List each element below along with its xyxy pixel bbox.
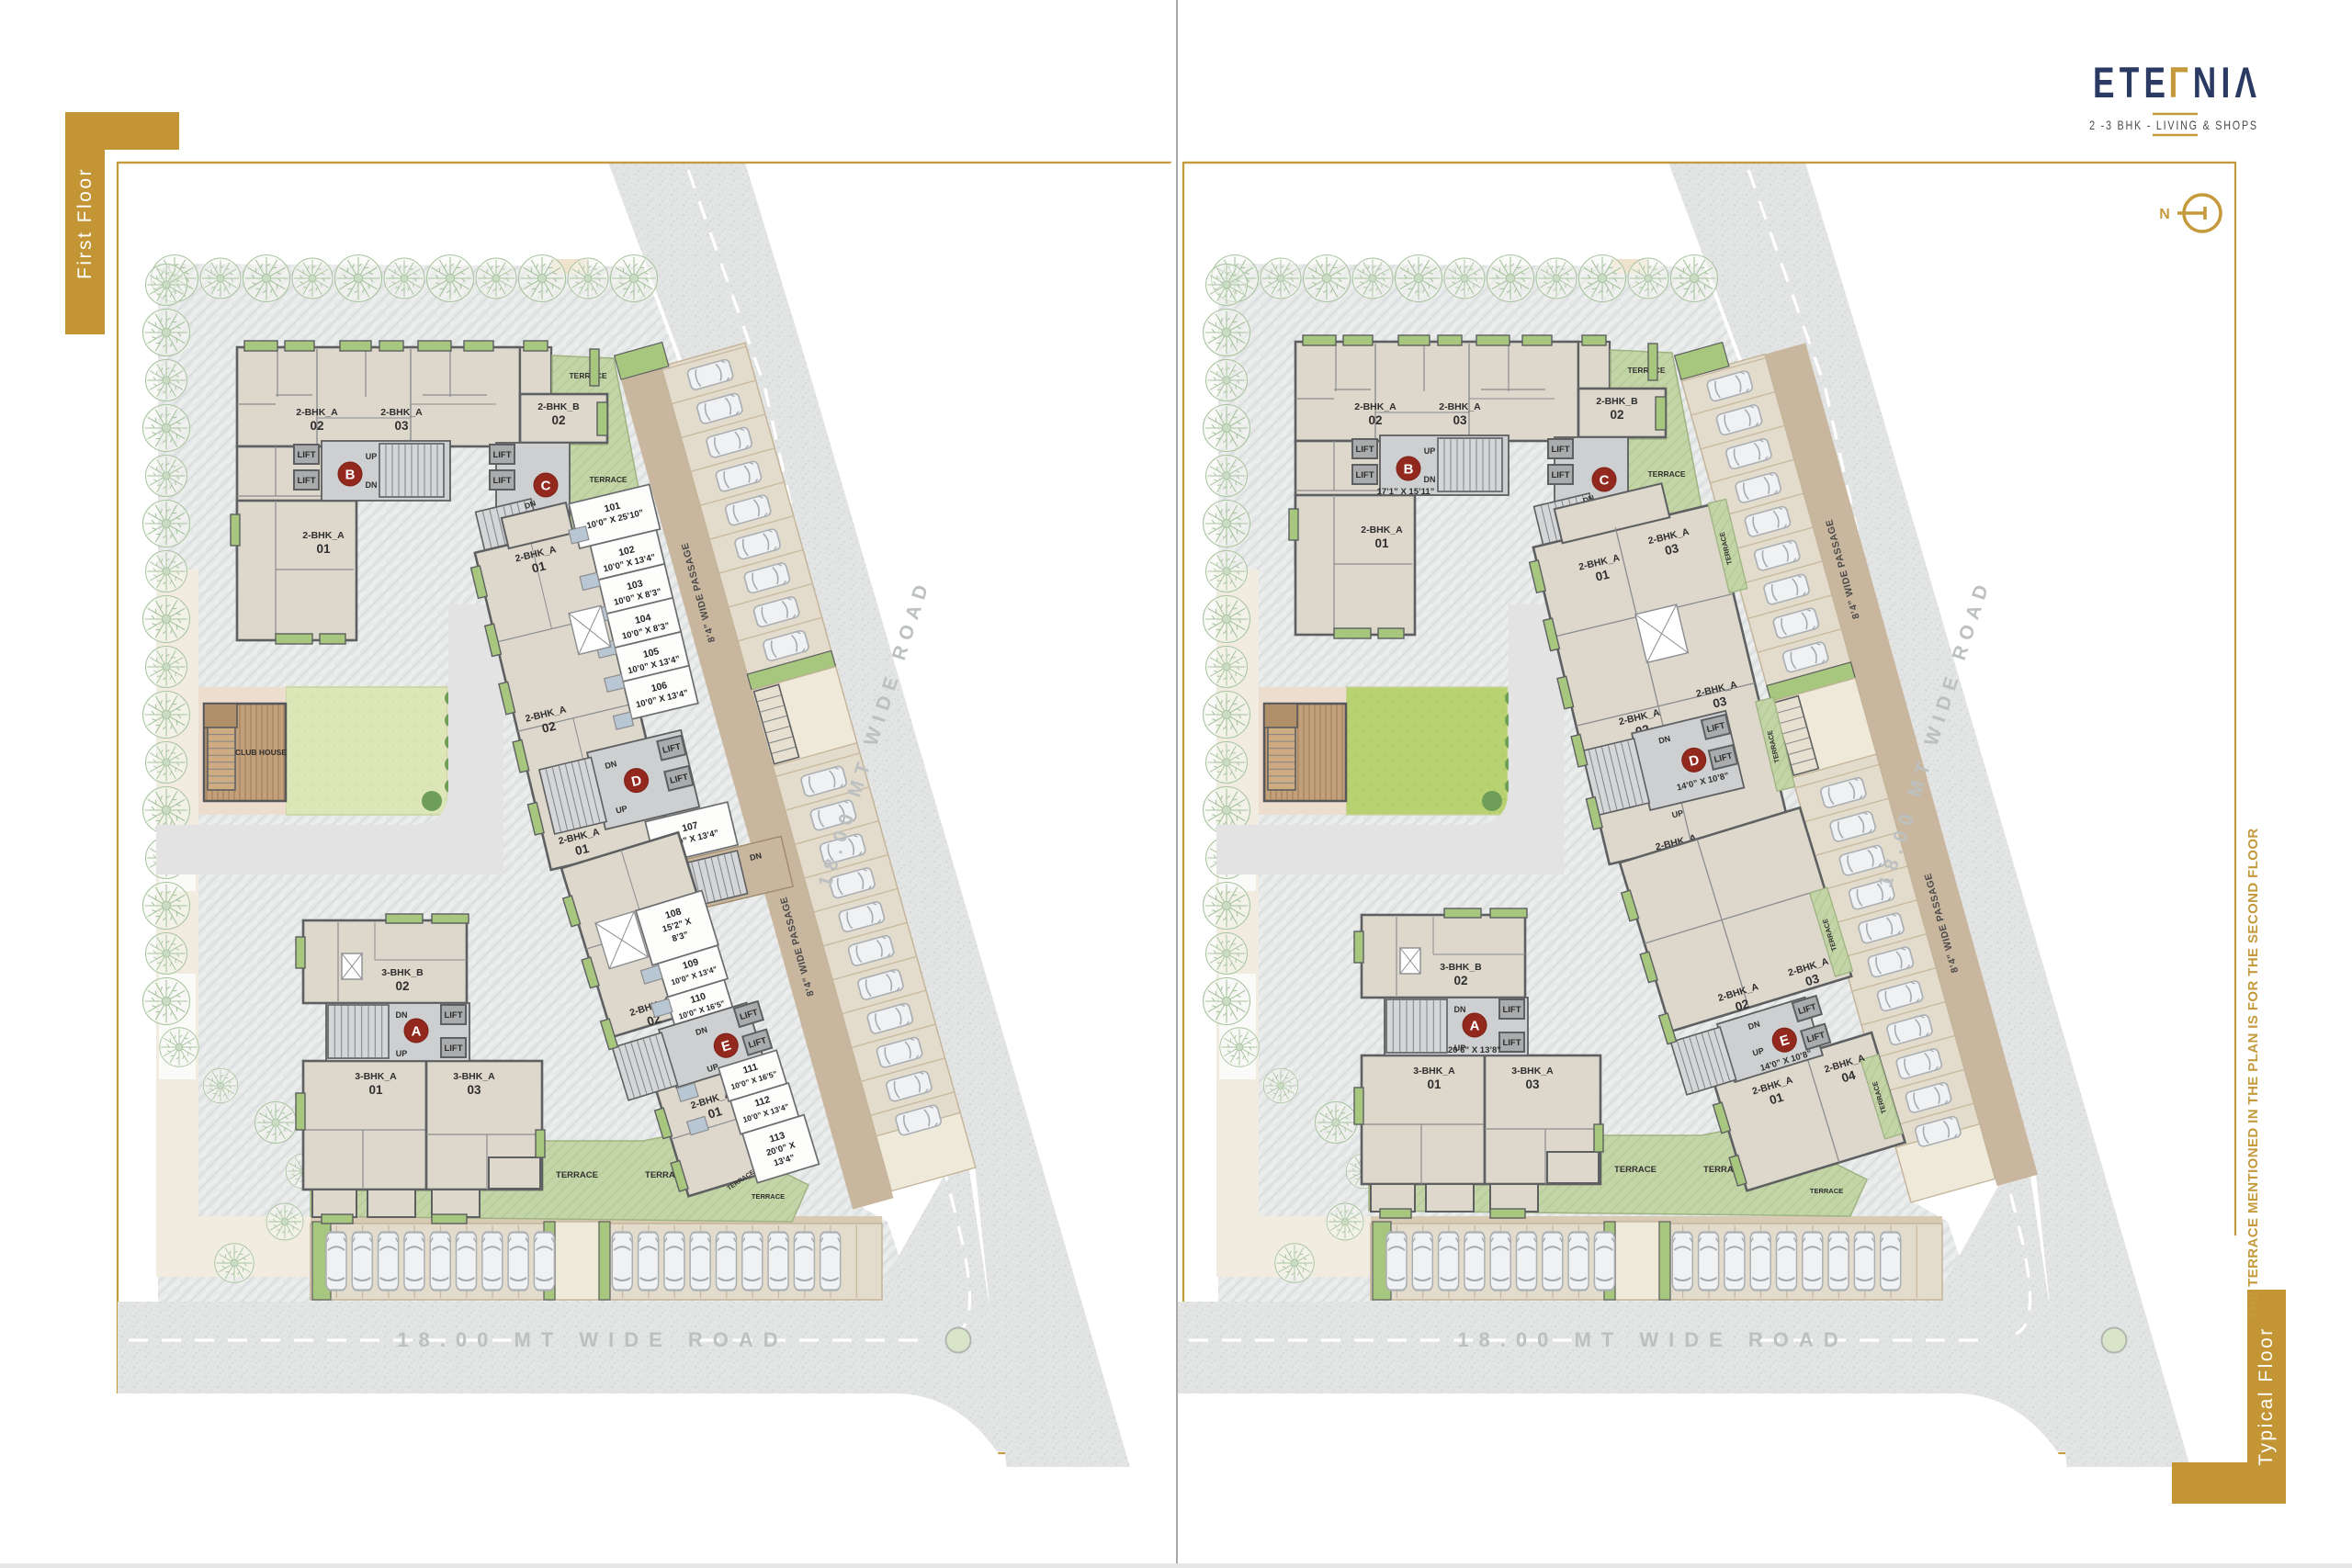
svg-text:3-BHK_A: 3-BHK_A (453, 1071, 495, 1082)
svg-text:2-BHK_A: 2-BHK_A (302, 530, 345, 541)
svg-text:02: 02 (395, 979, 409, 993)
svg-text:LIFT: LIFT (444, 1043, 462, 1054)
svg-text:LIFT: LIFT (297, 476, 315, 486)
svg-text:THE TERRACE MENTIONED IN THE P: THE TERRACE MENTIONED IN THE PLAN IS FOR… (2245, 828, 2261, 1319)
svg-text:2-BHK_A: 2-BHK_A (380, 407, 423, 418)
svg-text:3-BHK_B: 3-BHK_B (381, 967, 424, 978)
svg-text:01: 01 (1374, 536, 1389, 550)
svg-text:LIFT: LIFT (1502, 1038, 1521, 1048)
svg-text:TERRACE: TERRACE (569, 371, 606, 380)
svg-text:TERRACE: TERRACE (1614, 1165, 1657, 1175)
svg-text:01: 01 (368, 1083, 383, 1097)
svg-text:3-BHK_A: 3-BHK_A (355, 1071, 397, 1082)
svg-text:ETE: ETE (2093, 58, 2170, 107)
svg-text:UP: UP (366, 452, 378, 461)
svg-text:LIFT: LIFT (1355, 445, 1374, 455)
svg-text:3-BHK_B: 3-BHK_B (1440, 962, 1482, 973)
svg-text:2-BHK_B: 2-BHK_B (537, 401, 580, 412)
svg-text:3-BHK_A: 3-BHK_A (1413, 1066, 1455, 1077)
svg-text:3-BHK_A: 3-BHK_A (1511, 1066, 1554, 1077)
svg-text:02: 02 (310, 419, 323, 433)
svg-text:LIFT: LIFT (1502, 1005, 1521, 1015)
svg-text:02: 02 (1453, 974, 1467, 987)
svg-text:02: 02 (1368, 413, 1382, 427)
svg-text:01: 01 (1427, 1077, 1442, 1091)
svg-text:A: A (412, 1024, 422, 1040)
svg-text:TERRACE: TERRACE (1627, 366, 1665, 375)
svg-text:01: 01 (316, 542, 331, 556)
svg-text:TERRACE: TERRACE (556, 1170, 598, 1180)
svg-text:UP: UP (396, 1049, 408, 1058)
svg-text:A: A (1470, 1019, 1480, 1034)
svg-text:02: 02 (551, 413, 565, 427)
svg-text:DN: DN (1424, 475, 1436, 484)
svg-text:LIFT: LIFT (297, 450, 315, 460)
svg-text:17’1” X 15’11”: 17’1” X 15’11” (1377, 487, 1435, 497)
svg-text:2 -3 BHK - LIVING & SHOPS: 2 -3 BHK - LIVING & SHOPS (2089, 118, 2258, 132)
svg-text:2-BHK_A: 2-BHK_A (296, 407, 338, 418)
svg-text:UP: UP (1424, 446, 1436, 456)
svg-text:NIΛ: NIΛ (2193, 58, 2261, 107)
svg-text:LIFT: LIFT (1355, 470, 1374, 480)
svg-text:03: 03 (394, 419, 409, 433)
svg-text:B: B (1404, 462, 1414, 478)
svg-text:TERRACE: TERRACE (589, 475, 627, 484)
svg-text:Typical Floor: Typical Floor (2256, 1326, 2277, 1466)
svg-text:C: C (541, 479, 551, 494)
svg-text:DN: DN (366, 480, 378, 490)
svg-text:LIFT: LIFT (492, 450, 511, 460)
svg-text:03: 03 (1525, 1077, 1540, 1091)
svg-text:LIFT: LIFT (1551, 445, 1569, 455)
svg-text:N: N (2159, 207, 2170, 222)
svg-text:DN: DN (396, 1010, 408, 1020)
svg-text:2-BHK_A: 2-BHK_A (1354, 401, 1396, 412)
svg-text:LIFT: LIFT (492, 476, 511, 486)
svg-text:03: 03 (1453, 413, 1467, 427)
svg-text:C: C (1600, 473, 1610, 489)
svg-text:LIFT: LIFT (444, 1010, 462, 1021)
svg-text:DN: DN (1454, 1005, 1466, 1014)
svg-text:18.00 MT WIDE ROAD: 18.00 MT WIDE ROAD (397, 1328, 787, 1351)
svg-text:B: B (345, 468, 356, 483)
svg-text:Γ: Γ (2169, 58, 2188, 107)
svg-text:2-BHK_A: 2-BHK_A (1439, 401, 1481, 412)
svg-text:20’6” X 13’8”: 20’6” X 13’8” (1448, 1045, 1501, 1055)
svg-text:03: 03 (467, 1083, 481, 1097)
svg-text:TERRACE: TERRACE (1647, 469, 1685, 479)
svg-text:02: 02 (1610, 408, 1623, 422)
svg-text:First Floor: First Floor (74, 167, 96, 279)
svg-text:TERRACE: TERRACE (1810, 1187, 1843, 1195)
svg-text:2-BHK_B: 2-BHK_B (1596, 396, 1638, 407)
svg-text:2-BHK_A: 2-BHK_A (1361, 525, 1403, 536)
svg-text:CLUB HOUSE: CLUB HOUSE (235, 748, 288, 757)
svg-text:TERRACE: TERRACE (752, 1192, 785, 1201)
svg-text:18.00 MT WIDE ROAD: 18.00 MT WIDE ROAD (1457, 1328, 1848, 1351)
svg-text:LIFT: LIFT (1551, 470, 1569, 480)
